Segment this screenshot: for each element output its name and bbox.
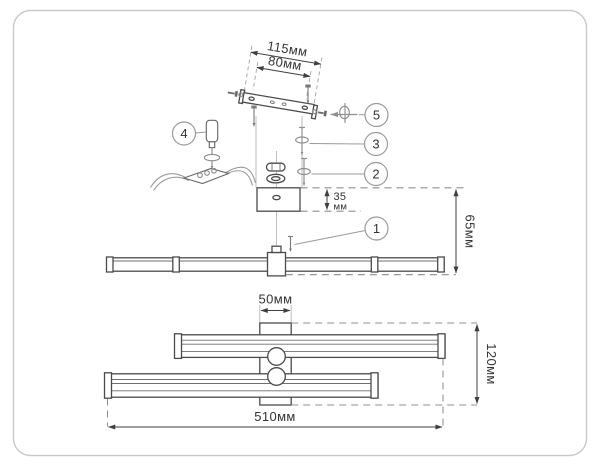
washer bbox=[267, 174, 285, 183]
callout-number: 5 bbox=[373, 108, 380, 123]
bar-joint bbox=[371, 257, 378, 272]
canopy-box bbox=[257, 188, 300, 211]
screwdriver-ferrule bbox=[209, 142, 214, 148]
swivel-joint-lower bbox=[268, 368, 286, 386]
assembly-drawing: 115мм 80мм bbox=[0, 0, 600, 467]
dim-label-canopy-depth-unit: мм bbox=[334, 202, 348, 213]
upper-lamp-tube bbox=[175, 334, 446, 359]
callout-number: 2 bbox=[372, 167, 379, 182]
center-mount-block bbox=[268, 253, 286, 276]
tube-body bbox=[175, 335, 445, 358]
tube-end-cap bbox=[105, 373, 112, 398]
assembly-instruction-page: 115мм 80мм bbox=[0, 0, 600, 467]
screw-shaft bbox=[228, 92, 235, 93]
swivel-joint-upper bbox=[268, 348, 286, 366]
tube-end-cap bbox=[175, 334, 182, 359]
mount-knob bbox=[272, 246, 281, 252]
dim-label-fixture-height: 120мм bbox=[484, 343, 499, 385]
dim-label-mount-height: 65мм bbox=[463, 215, 478, 249]
lower-lamp-tube bbox=[105, 373, 379, 398]
screw-head bbox=[251, 106, 256, 109]
dim-label-fixture-length: 510мм bbox=[254, 409, 296, 424]
bar-joint bbox=[173, 257, 180, 272]
dim-label-canopy-width: 50мм bbox=[259, 292, 293, 307]
screw-shaft bbox=[318, 112, 324, 113]
spacer-nut bbox=[267, 163, 286, 171]
tube-end-cap bbox=[438, 334, 445, 359]
tube-body bbox=[105, 374, 378, 397]
screw-head bbox=[305, 85, 310, 88]
bar-end-cap bbox=[107, 257, 114, 272]
callout-number: 3 bbox=[372, 137, 379, 152]
callout-number: 4 bbox=[180, 126, 187, 141]
bar-end-cap bbox=[438, 257, 445, 272]
callout-number: 1 bbox=[373, 221, 380, 236]
tube-end-cap bbox=[371, 373, 378, 398]
screwdriver-handle bbox=[206, 120, 217, 142]
leader-line bbox=[310, 144, 365, 145]
